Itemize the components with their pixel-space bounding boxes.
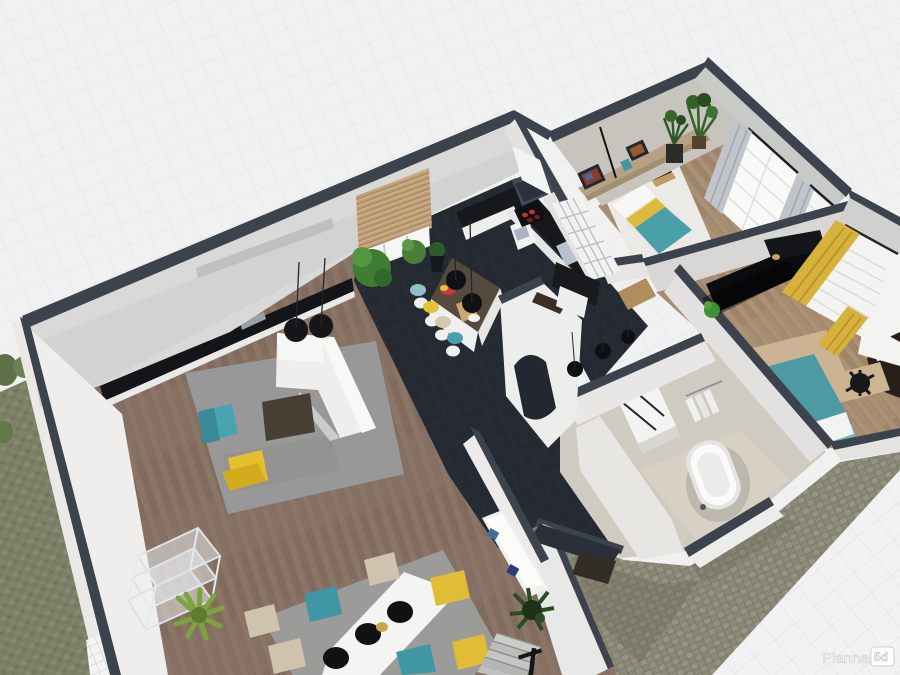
svg-text:Planner: Planner — [822, 650, 874, 667]
svg-text:5d: 5d — [874, 650, 888, 664]
